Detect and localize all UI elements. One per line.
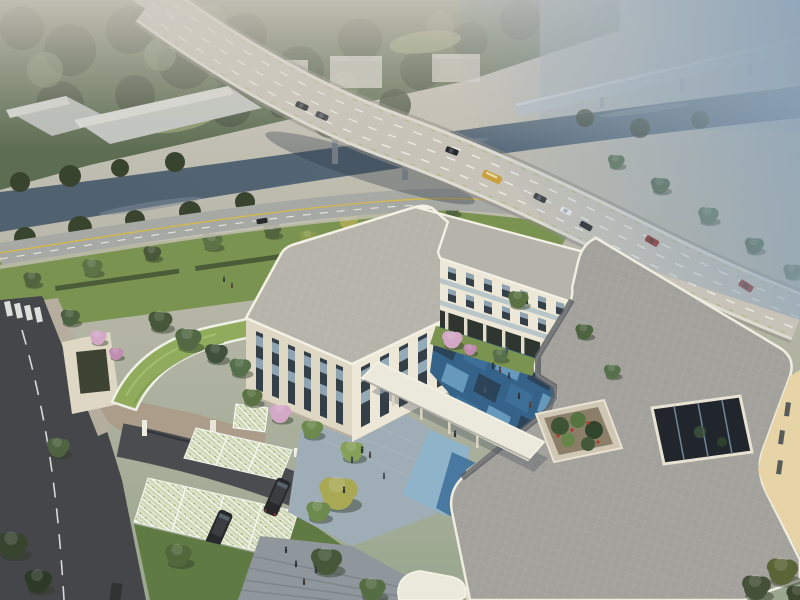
- rendering-canvas: ​: [0, 0, 800, 600]
- pergola-trellis: [233, 404, 268, 432]
- aerial-render-svg: ​: [0, 0, 800, 600]
- roof-atrium: [652, 396, 752, 464]
